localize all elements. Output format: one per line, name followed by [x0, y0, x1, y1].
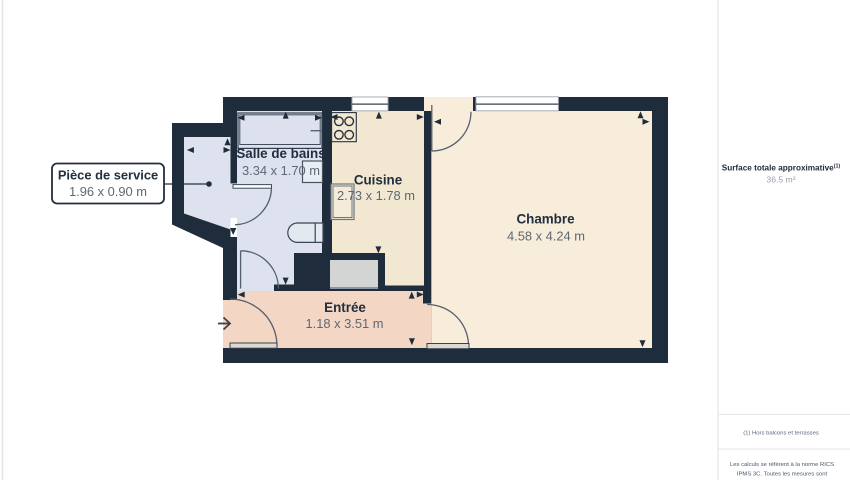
- svg-text:Les calculs se réfèrent à la n: Les calculs se réfèrent à la norme RICS: [730, 462, 834, 468]
- svg-text:Cuisine: Cuisine: [354, 173, 402, 188]
- svg-text:Entrée: Entrée: [324, 300, 366, 315]
- svg-text:1.96 x 0.90 m: 1.96 x 0.90 m: [69, 184, 147, 199]
- svg-text:3.34 x 1.70 m: 3.34 x 1.70 m: [242, 163, 320, 178]
- svg-text:Surface totale approximative(1: Surface totale approximative(1): [722, 164, 841, 173]
- svg-text:36.5 m²: 36.5 m²: [766, 175, 795, 185]
- svg-text:1.18 x 3.51 m: 1.18 x 3.51 m: [305, 316, 383, 331]
- svg-text:Chambre: Chambre: [516, 212, 574, 227]
- svg-text:Pièce de service: Pièce de service: [58, 168, 158, 183]
- svg-text:Salle de bains: Salle de bains: [236, 146, 325, 161]
- svg-text:2.73 x 1.78 m: 2.73 x 1.78 m: [337, 188, 415, 203]
- svg-text:(1) Hors balcons et terrasses: (1) Hors balcons et terrasses: [743, 431, 819, 437]
- svg-text:IPMS 3C. Toutes les mesures so: IPMS 3C. Toutes les mesures sont: [737, 472, 828, 478]
- svg-text:4.58 x 4.24 m: 4.58 x 4.24 m: [507, 229, 585, 244]
